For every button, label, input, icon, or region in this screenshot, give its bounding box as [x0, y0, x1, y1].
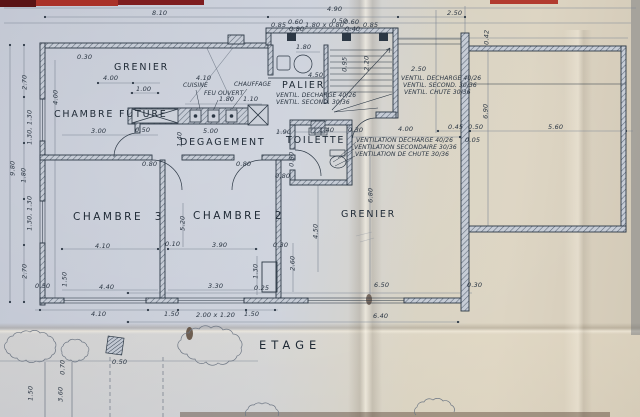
plan-label: 0.80 — [275, 173, 290, 180]
label-chauffage: CHAUFFAGE — [234, 82, 271, 88]
label-toilette: TOILETTE — [286, 136, 345, 146]
plan-label: 0.85 — [363, 22, 378, 29]
plan-label: 2.50 — [447, 10, 462, 17]
plan-label: 1.80 — [20, 168, 27, 183]
plan-label: 0.50 — [35, 283, 50, 290]
plan-label: 5.20 — [179, 216, 186, 231]
plan-label: 4.00 — [103, 75, 118, 82]
plan-label: 5.60 — [548, 124, 563, 131]
plan-label: 0.42 — [483, 30, 490, 45]
plan-label: 1.90 — [276, 129, 291, 136]
plan-label: 0.85 — [271, 22, 286, 29]
label-chambre-3: CHAMBRE 3 — [73, 212, 164, 223]
label-chambre-future: CHAMBRE FUTURE — [54, 110, 168, 120]
plan-label: 0.45 — [448, 124, 463, 131]
plan-label: 0.40 — [345, 26, 360, 33]
plan-label: 0.30 — [467, 282, 482, 289]
plan-label: 3.60 — [57, 387, 64, 402]
plan-label: 5.00 — [203, 128, 218, 135]
plan-label: 6.40 — [373, 313, 388, 320]
plan-label: 8.10 — [152, 10, 167, 17]
note-ventil-second-palier: VENTIL. SECOND. 30/36 — [276, 100, 350, 106]
plan-label: 4.00 — [398, 126, 413, 133]
plan-label: 9.80 — [9, 161, 16, 176]
plan-label: 0.80 — [142, 161, 157, 168]
plan-label: 4.10 — [196, 75, 211, 82]
plan-label: 0.30 — [77, 54, 92, 61]
label-palier: PALIER — [282, 81, 325, 91]
plan-label: 2.70 — [21, 75, 28, 90]
plan-label: 0.10 — [165, 241, 180, 248]
plan-label: 3.90 — [212, 242, 227, 249]
plan-label: 1.00 — [136, 86, 151, 93]
label-etage: ETAGE — [259, 340, 321, 352]
plan-label: 2.70 — [21, 264, 28, 279]
plan-label: 0.80 — [236, 161, 251, 168]
plan-label: 6.90 — [482, 104, 489, 119]
plan-label: 1.30, 1.30 — [26, 196, 33, 231]
plan-label: 1.80 — [219, 96, 234, 103]
plan-label: 0.05 — [465, 137, 480, 144]
plan-label: 3.30 — [208, 283, 223, 290]
plan-label: 4.90 — [327, 6, 342, 13]
plan-label: 1.80 — [296, 44, 311, 51]
note-ventilation-chute: VENTILATION DE CHUTE 30/36 — [355, 152, 449, 158]
plan-label: 2.20 — [363, 56, 370, 71]
label-chambre-2: CHAMBRE 2 — [193, 211, 284, 222]
plan-label: 4.40 — [99, 284, 114, 291]
plan-label: 4.50 — [312, 224, 319, 239]
label-grenier-bottom: GRENIER — [341, 210, 396, 220]
plan-label: 0.70 — [59, 360, 66, 375]
plan-label: 0.95 — [341, 57, 348, 72]
plan-label: 0.50 — [468, 124, 483, 131]
plan-label: 1.50 — [244, 311, 259, 318]
plan-label: 0.30 — [273, 242, 288, 249]
plan-label: 1.40 — [176, 132, 183, 147]
label-degagement: DEGAGEMENT — [180, 138, 265, 148]
plan-label: 2.00 x 1.20 — [196, 312, 235, 319]
plan-label: 1.30 — [252, 264, 259, 279]
plan-label: 1.10 — [243, 96, 258, 103]
plan-label: 0.50 — [112, 359, 127, 366]
plan-label: 4.00 — [52, 90, 59, 105]
plan-label: 1.50 — [27, 386, 34, 401]
plan-label: 6.50 — [374, 282, 389, 289]
label-grenier-top: GRENIER — [114, 63, 169, 73]
plan-label: 2.60 — [289, 256, 296, 271]
plan-label: 1.50 — [164, 311, 179, 318]
plan-label: 4.10 — [91, 311, 106, 318]
plan-label: 2.50 — [411, 66, 426, 73]
plan-label: 1.50 — [61, 272, 68, 287]
plan-label: 3.00 — [91, 128, 106, 135]
plan-label: 4.50 — [308, 72, 323, 79]
plan-label: 0.80 — [288, 152, 295, 167]
label-cuisine: CUISINE — [183, 83, 208, 89]
plan-label: 0.25 — [254, 285, 269, 292]
plan-label: 0.80 — [289, 26, 304, 33]
blueprint-photo: GRENIERCHAMBRE FUTUREDEGAGEMENTPALIERTOI… — [0, 0, 640, 417]
plan-label: 1.30, 1.30 — [26, 110, 33, 145]
plan-label: 1.40 — [319, 127, 334, 134]
plan-label: 0.50 — [135, 127, 150, 134]
plan-label: 4.10 — [95, 243, 110, 250]
plan-labels-layer: GRENIERCHAMBRE FUTUREDEGAGEMENTPALIERTOI… — [0, 0, 640, 417]
plan-label: 0.30 — [348, 127, 363, 134]
plan-label: 6.80 — [367, 188, 374, 203]
note-ventil-chute: VENTIL. CHUTE 30/36 — [404, 90, 471, 96]
